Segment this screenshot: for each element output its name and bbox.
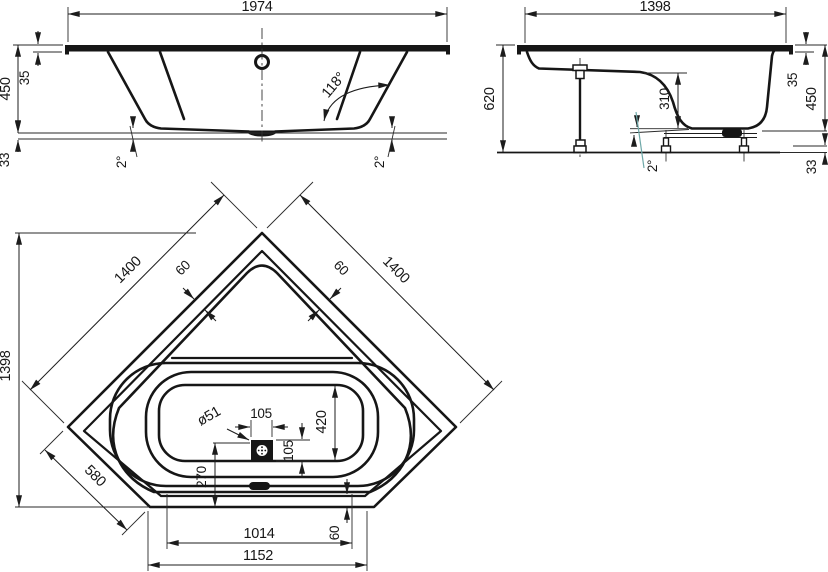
extension-line xyxy=(22,381,64,423)
extension-line xyxy=(267,182,313,228)
rim-bar xyxy=(65,45,450,52)
overflow-slot xyxy=(249,482,270,490)
foot-rod xyxy=(664,138,669,146)
dim-side-slope: 2° xyxy=(645,160,660,172)
dim-side-rim: 35 xyxy=(785,73,800,87)
dim-arrow xyxy=(330,288,341,299)
wall-inner-left xyxy=(160,52,184,119)
dim-plan-drain-height: 105 xyxy=(281,440,296,462)
extension-line xyxy=(40,431,63,454)
front-elevation-view: 1974 450 35 33 118° 2 xyxy=(0,0,450,168)
dim-front-slope-right: 2° xyxy=(372,156,387,168)
drawing-canvas: 1974 450 35 33 118° 2 xyxy=(0,0,828,572)
dim-plan-basin-width: 420 xyxy=(314,410,330,434)
dim-plan-length-outer: 1152 xyxy=(243,548,273,564)
drain-grid-dot xyxy=(261,446,263,448)
extension-line xyxy=(211,182,257,228)
drain-grid-dot xyxy=(258,450,260,452)
foot-base xyxy=(574,146,586,153)
foot-bracket xyxy=(573,65,587,71)
drain-trap xyxy=(722,129,742,137)
foot-base xyxy=(740,146,749,153)
dim-line-edge-left xyxy=(30,195,224,390)
dim-plan-edge-left: 1400 xyxy=(112,253,145,286)
leader-line xyxy=(227,429,249,440)
foot-middle xyxy=(662,130,671,163)
dim-plan-drain-width: 105 xyxy=(250,406,272,421)
dim-side-length: 1398 xyxy=(639,0,670,15)
dim-plan-drain-offset: 270 xyxy=(194,466,209,488)
dim-front-rim: 35 xyxy=(17,71,32,85)
waterline-contour xyxy=(110,363,414,486)
wall-outer-left xyxy=(108,52,249,132)
dim-side-height: 620 xyxy=(482,87,498,111)
drain-grid-dot xyxy=(264,450,266,452)
dim-front-length: 1974 xyxy=(241,0,272,15)
leader-line xyxy=(388,126,395,157)
leader-line xyxy=(130,126,137,157)
foot-base xyxy=(576,140,585,146)
rim-lip-right xyxy=(789,51,793,55)
leader-line-accent xyxy=(636,112,644,168)
dim-side-shell: 450 xyxy=(804,87,820,111)
foot-rod xyxy=(742,138,747,146)
dim-plan-drain: ø51 xyxy=(195,403,224,429)
bathtub-technical-drawing: 1974 450 35 33 118° 2 xyxy=(0,0,828,572)
dim-side-depth: 310 xyxy=(657,88,672,110)
dim-front-base: 33 xyxy=(0,153,12,167)
dim-plan-rim-bottom: 60 xyxy=(327,526,342,540)
extension-line xyxy=(122,512,145,535)
wall-outer-right xyxy=(275,52,407,132)
foot-adjuster xyxy=(576,71,584,79)
foot-base xyxy=(662,146,671,153)
dim-plan-edge-right: 1400 xyxy=(379,254,412,287)
dim-arrow xyxy=(183,288,194,299)
plan-view: 1400 1400 60 60 1398 580 ø51 105 xyxy=(0,182,502,571)
dim-side-base: 33 xyxy=(804,160,819,174)
dim-plan-corner: 580 xyxy=(81,462,109,490)
rim-bar xyxy=(517,45,793,52)
dim-plan-rim-left: 60 xyxy=(172,257,193,278)
dim-plan-length-inner: 1014 xyxy=(243,526,274,542)
tub-profile xyxy=(527,51,774,129)
dim-line-edge-right xyxy=(300,195,494,390)
extension-line xyxy=(460,381,502,423)
dim-plan-span: 1398 xyxy=(0,350,14,381)
drain-grid-dot xyxy=(261,450,263,452)
dim-front-slope-left: 2° xyxy=(114,156,129,168)
rim-lip-right xyxy=(446,51,450,55)
dim-plan-rim-right: 60 xyxy=(331,257,352,278)
dim-front-height: 450 xyxy=(0,77,14,101)
rim-lip-left xyxy=(517,51,521,55)
drain-grid-dot xyxy=(261,453,263,455)
foot-left-adjustable xyxy=(573,58,587,160)
rim-lip-left xyxy=(65,51,69,55)
dim-line-corner xyxy=(45,450,127,530)
side-elevation-view: 1398 xyxy=(482,0,827,174)
